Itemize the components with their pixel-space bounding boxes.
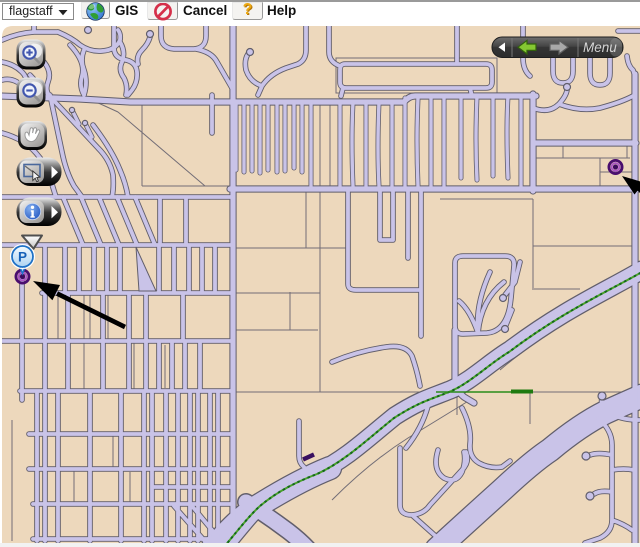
svg-text:P: P bbox=[18, 250, 27, 265]
svg-text:Menu: Menu bbox=[583, 40, 617, 55]
